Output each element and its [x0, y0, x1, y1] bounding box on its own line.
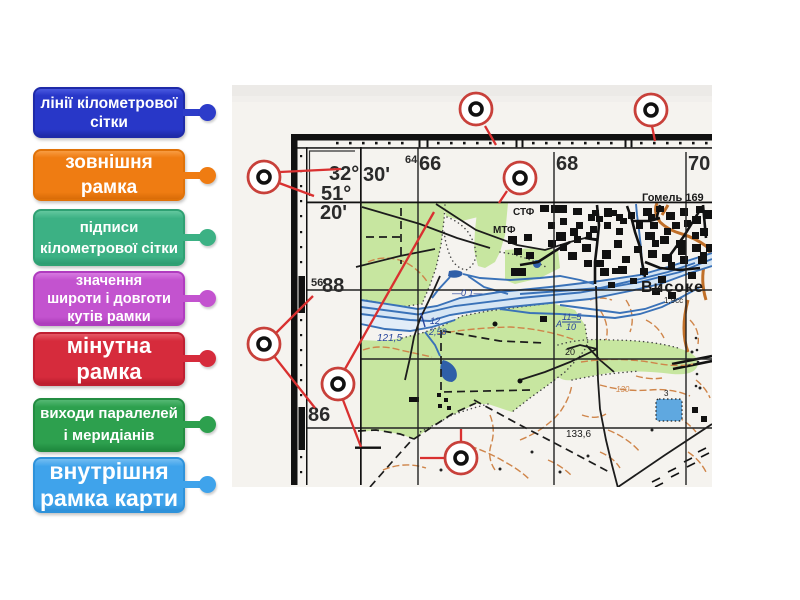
svg-text:86: 86: [308, 404, 330, 426]
svg-text:66: 66: [419, 153, 441, 175]
svg-text:133,6: 133,6: [566, 429, 591, 440]
svg-text:—0 1—: —0 1—: [451, 288, 484, 298]
svg-text:30': 30': [363, 164, 390, 186]
svg-text:А: А: [555, 319, 562, 329]
svg-text:Високе: Високе: [641, 279, 704, 296]
svg-text:1,9сс: 1,9сс: [664, 296, 683, 305]
svg-text:10: 10: [566, 322, 576, 332]
svg-text:Гомель 169: Гомель 169: [642, 192, 704, 204]
svg-text:20: 20: [565, 347, 575, 357]
svg-text:11–5: 11–5: [562, 312, 582, 322]
svg-text:МТФ: МТФ: [493, 225, 516, 236]
svg-text:3: 3: [664, 389, 669, 398]
svg-text:2,58: 2,58: [428, 327, 447, 337]
svg-text:121,5: 121,5: [377, 333, 402, 344]
svg-text:68: 68: [556, 153, 578, 175]
svg-text:20': 20': [320, 202, 347, 224]
svg-text:СТФ: СТФ: [513, 207, 535, 218]
svg-text:12: 12: [430, 316, 440, 326]
svg-text:70: 70: [688, 153, 710, 175]
svg-text:64: 64: [405, 154, 418, 166]
svg-text:32°: 32°: [329, 163, 359, 185]
svg-text:130: 130: [616, 385, 630, 394]
svg-text:88: 88: [322, 275, 344, 297]
